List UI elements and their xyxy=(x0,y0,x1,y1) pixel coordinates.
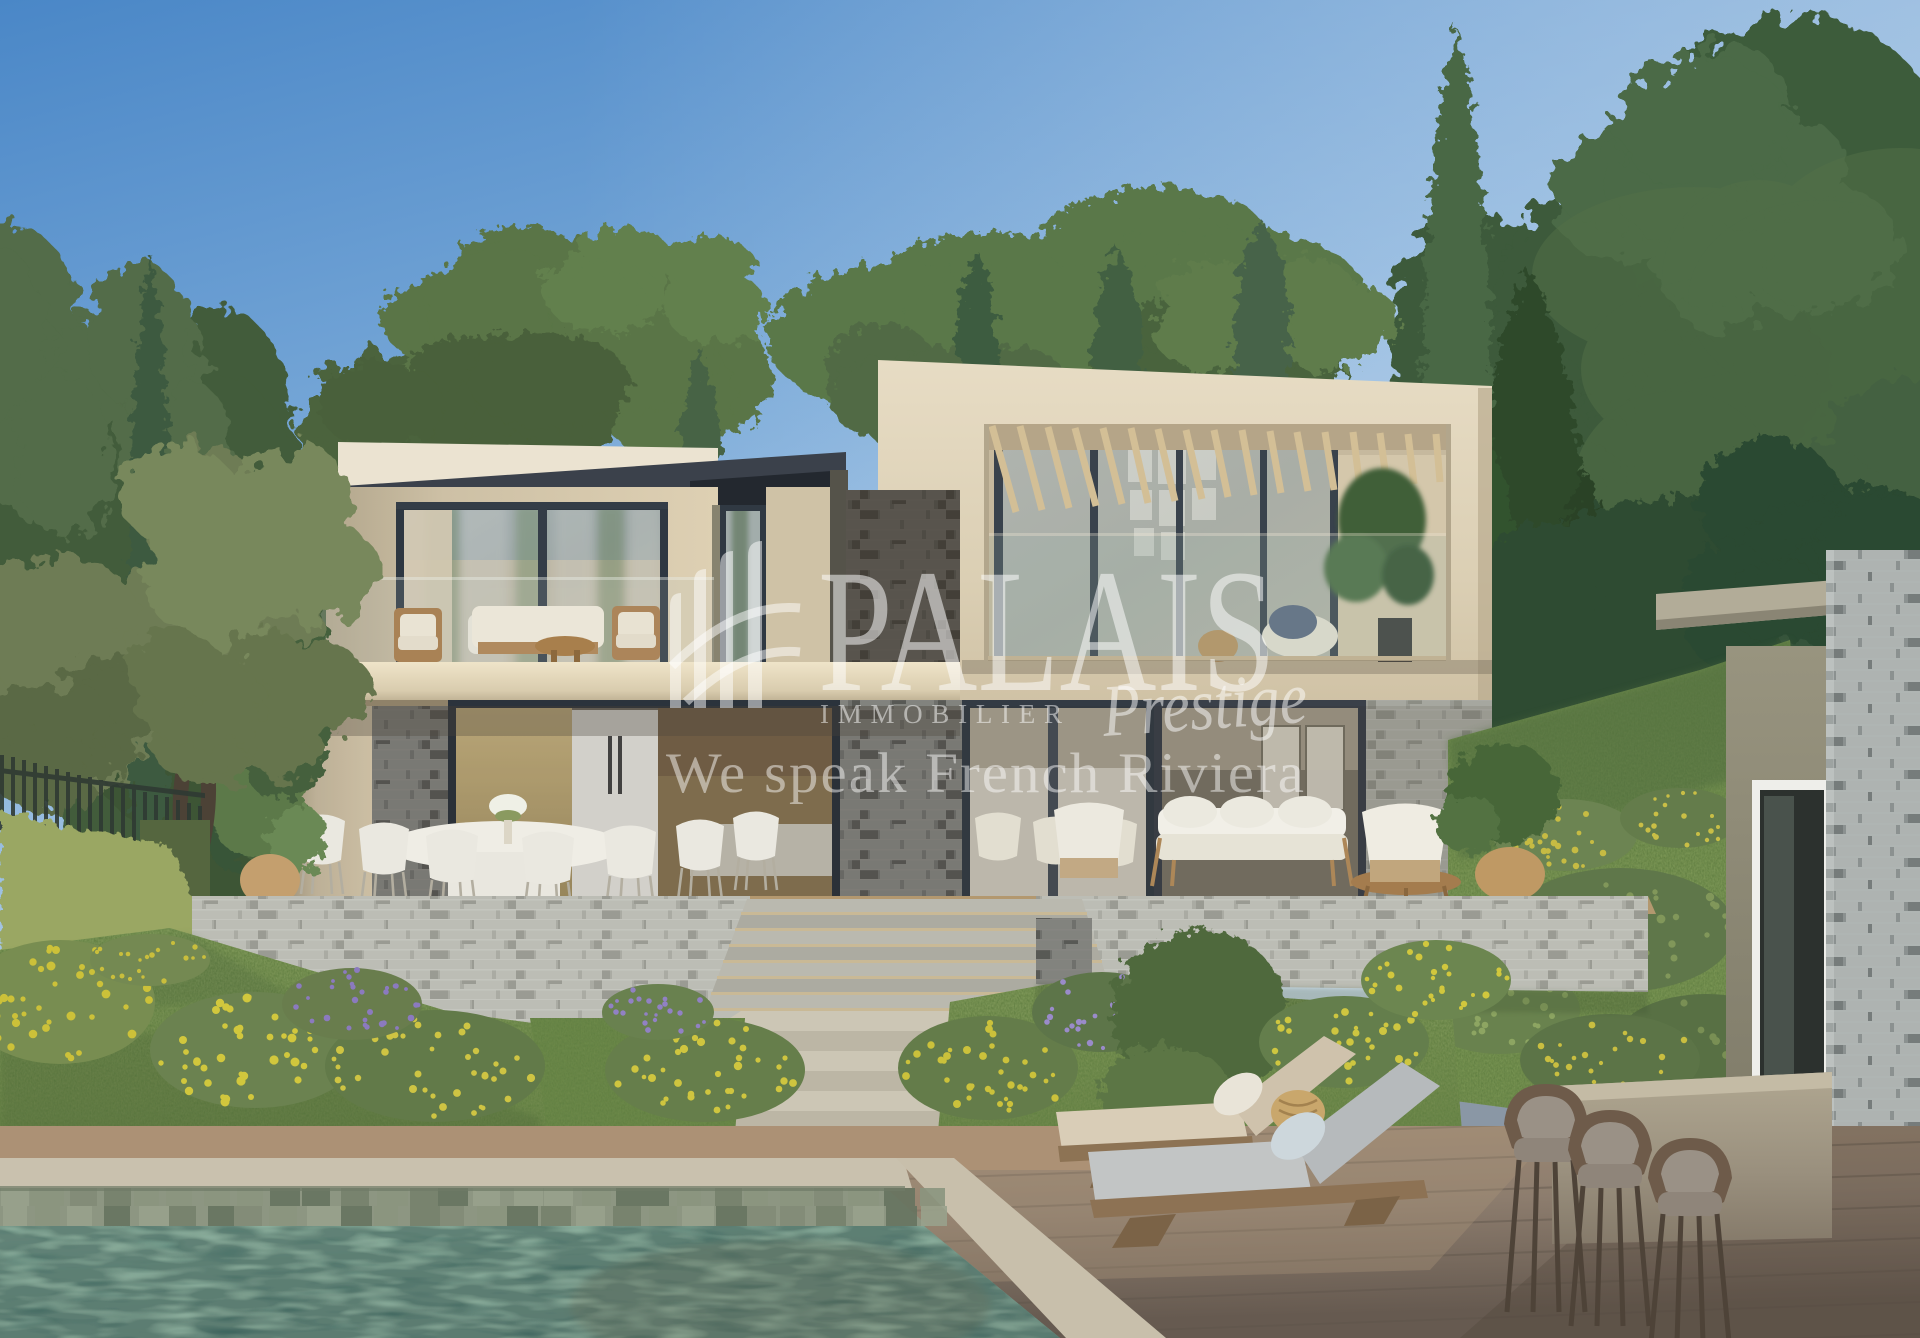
svg-text:Prestige: Prestige xyxy=(1099,657,1310,753)
svg-text:We speak French Riviera: We speak French Riviera xyxy=(666,742,1306,805)
svg-text:IMMOBILIER: IMMOBILIER xyxy=(820,699,1070,729)
